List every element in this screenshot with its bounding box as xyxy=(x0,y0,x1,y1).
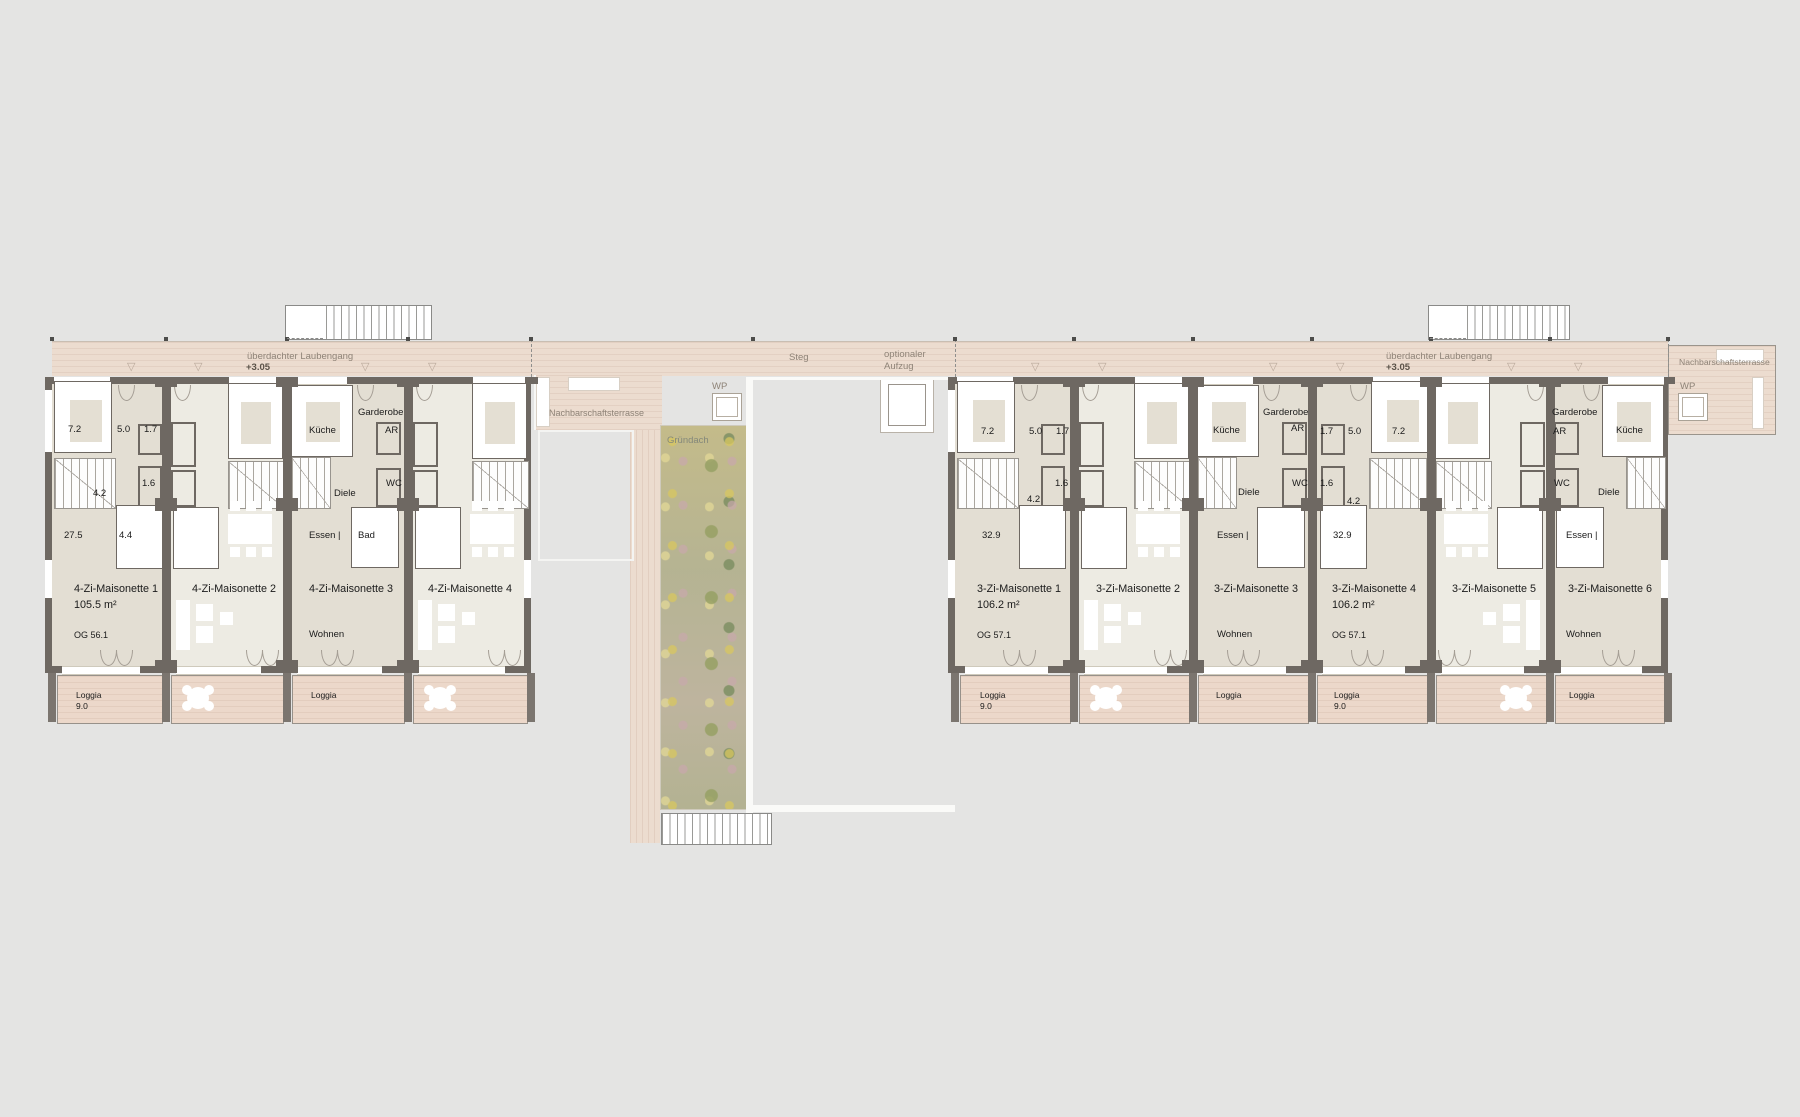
post xyxy=(164,337,168,341)
loggia-side-wall xyxy=(283,673,291,722)
divider-flange xyxy=(276,377,298,387)
loggia-side-wall xyxy=(404,673,412,722)
room-label: Essen | xyxy=(1217,530,1249,541)
sofa-cushion xyxy=(438,604,455,621)
kitchen-island xyxy=(1617,402,1651,442)
dashed-landing-edge xyxy=(1430,338,1466,339)
room-label: WC xyxy=(1292,478,1308,489)
wp-box-inner xyxy=(1682,397,1704,417)
bench xyxy=(568,377,620,391)
room-label: 5.0 xyxy=(1348,426,1361,437)
room-label: AR xyxy=(1553,426,1566,437)
loggia-chair xyxy=(446,685,456,695)
room-label: 32.9 xyxy=(1333,530,1352,541)
window-bottom xyxy=(1203,666,1286,675)
sub-terrace-outline xyxy=(538,430,634,561)
loggia-area: 9.0 xyxy=(1334,701,1346,712)
storage-room xyxy=(1079,422,1104,467)
chair xyxy=(246,547,256,557)
aufzug-label-line1: optionaler xyxy=(884,349,926,360)
room-label: Wohnen xyxy=(1566,629,1601,640)
post xyxy=(1191,337,1195,341)
window-bottom xyxy=(1084,666,1167,675)
chair xyxy=(488,501,498,511)
laubengang-level-left: +3.05 xyxy=(246,362,270,373)
divider-wall xyxy=(404,377,413,673)
sofa-cushion xyxy=(196,604,213,621)
kitchen xyxy=(1602,385,1664,457)
divider-flange xyxy=(1539,377,1561,387)
chair xyxy=(1462,501,1472,511)
divider-flange xyxy=(1301,660,1323,673)
room-label: Wohnen xyxy=(309,629,344,640)
chair xyxy=(1478,547,1488,557)
loggia-chair xyxy=(1090,701,1100,711)
divider-flange xyxy=(1063,377,1085,387)
window-side xyxy=(45,390,52,452)
loggia-label: Loggia xyxy=(311,690,337,701)
kitchen xyxy=(472,383,527,459)
post xyxy=(1072,337,1076,341)
sofa xyxy=(1084,600,1098,650)
unit-area: 105.5 m² xyxy=(74,600,117,611)
room-label: WC xyxy=(1554,478,1570,489)
kitchen xyxy=(228,383,283,459)
chair xyxy=(1154,547,1164,557)
loggia-side-wall xyxy=(951,673,959,722)
bedroom xyxy=(957,381,1015,453)
dining-table xyxy=(228,514,272,544)
room-label: 27.5 xyxy=(64,530,83,541)
loggia-chair xyxy=(1112,685,1122,695)
divider-flange xyxy=(1420,377,1442,387)
room-label: 4.2 xyxy=(1027,494,1040,505)
post xyxy=(953,337,957,341)
dining-table xyxy=(1444,514,1488,544)
entrance-marker: ▽ xyxy=(1031,360,1039,373)
divider-flange xyxy=(397,498,419,511)
room-label: 7.2 xyxy=(68,424,81,435)
dining-table xyxy=(470,514,514,544)
post xyxy=(406,337,410,341)
dashed-landing-edge xyxy=(287,338,323,339)
laubengang-label-right: überdachter Laubengang xyxy=(1386,351,1492,362)
room-label: WC xyxy=(386,478,402,489)
sofa-cushion xyxy=(1503,626,1520,643)
floor-plan-canvas: überdachter Laubengang +3.05 überdachter… xyxy=(0,0,1800,1117)
divider-flange xyxy=(276,660,298,673)
loggia xyxy=(292,675,405,724)
chair xyxy=(504,547,514,557)
room-label: 1.6 xyxy=(1055,478,1068,489)
gruendach-label: Gründach xyxy=(667,435,709,446)
exterior-stair-top-left xyxy=(285,305,432,340)
exterior-stair-top-right xyxy=(1428,305,1570,340)
loggia-label: Loggia xyxy=(1216,690,1242,701)
room-label: Diele xyxy=(1598,487,1620,498)
chair xyxy=(262,547,272,557)
sofa xyxy=(176,600,190,650)
window-side xyxy=(1661,560,1668,598)
steg-vertical xyxy=(630,430,660,843)
loggia-label: Loggia xyxy=(1334,690,1360,701)
loggia-chair xyxy=(446,701,456,711)
loggia-chair xyxy=(1112,701,1122,711)
entrance-marker: ▽ xyxy=(127,360,135,373)
loggia-area: 9.0 xyxy=(76,701,88,712)
divider-flange xyxy=(276,498,298,511)
sofa-cushion xyxy=(196,626,213,643)
chair xyxy=(1170,547,1180,557)
storage-room xyxy=(171,422,196,467)
window-top xyxy=(1197,377,1253,385)
chair xyxy=(1138,547,1148,557)
loggia-chair xyxy=(1522,685,1532,695)
loggia-chair xyxy=(1500,685,1510,695)
divider-flange xyxy=(1301,377,1323,387)
room-label: Garderobe xyxy=(1263,407,1308,418)
room-label: 7.2 xyxy=(1392,426,1405,437)
divider-flange xyxy=(1301,498,1323,511)
unit-area: 106.2 m² xyxy=(977,600,1020,611)
coffee-table xyxy=(1483,612,1496,625)
sofa-cushion xyxy=(438,626,455,643)
wp-box-inner xyxy=(716,397,738,417)
loggia xyxy=(57,675,163,724)
coffee-table xyxy=(462,612,475,625)
chair xyxy=(230,501,240,511)
bath-room xyxy=(1497,507,1543,569)
divider-flange xyxy=(1420,660,1442,673)
post xyxy=(1548,337,1552,341)
chair xyxy=(1446,501,1456,511)
neighborhood-terrace-right-label: Nachbarschaftsterrasse xyxy=(1679,357,1770,368)
window-side xyxy=(948,560,955,598)
window-bottom xyxy=(965,666,1048,675)
divider-wall xyxy=(1070,377,1079,673)
post xyxy=(751,337,755,341)
unit-area: 106.2 m² xyxy=(1332,600,1375,611)
window-bottom xyxy=(1441,666,1524,675)
loggia-side-wall xyxy=(1070,673,1078,722)
loggia-side-wall xyxy=(48,673,56,722)
divider-flange xyxy=(155,498,177,511)
chair xyxy=(1170,501,1180,511)
entrance-marker: ▽ xyxy=(1098,360,1106,373)
laubengang-label-left: überdachter Laubengang xyxy=(247,351,353,362)
divider-wall xyxy=(1427,377,1436,673)
dashed-line xyxy=(1668,339,1669,377)
kitchen-island xyxy=(306,402,340,442)
coffee-table xyxy=(1128,612,1141,625)
bed xyxy=(70,400,102,442)
kitchen-island xyxy=(1212,402,1246,442)
dining-table xyxy=(1136,514,1180,544)
sofa xyxy=(1526,600,1540,650)
loggia-side-wall xyxy=(527,673,535,722)
bath-room xyxy=(1081,507,1127,569)
loggia-label: Loggia xyxy=(1569,690,1595,701)
unit-name: 4-Zi-Maisonette 1 xyxy=(74,584,158,595)
bedroom xyxy=(1371,381,1429,453)
room-label: 1.6 xyxy=(142,478,155,489)
room-label: Essen | xyxy=(1566,530,1598,541)
window-bottom xyxy=(1322,666,1405,675)
entrance-marker: ▽ xyxy=(1336,360,1344,373)
window-bottom xyxy=(418,666,505,675)
loggia-chair xyxy=(1522,701,1532,711)
stair-interior xyxy=(957,458,1019,509)
divider-flange xyxy=(1420,498,1442,511)
chair xyxy=(230,547,240,557)
room-label: 4.4 xyxy=(119,530,132,541)
loggia-side-wall xyxy=(1664,673,1672,722)
kitchen xyxy=(1134,383,1189,459)
entrance-marker: ▽ xyxy=(1507,360,1515,373)
sofa-cushion xyxy=(1104,626,1121,643)
post xyxy=(1666,337,1670,341)
loggia-side-wall xyxy=(1189,673,1197,722)
window-side xyxy=(45,560,52,598)
room-label: Diele xyxy=(334,488,356,499)
room-label: 5.0 xyxy=(1029,426,1042,437)
courtyard-wall-right xyxy=(746,377,753,813)
window-side xyxy=(524,560,531,598)
stair-interior xyxy=(1626,457,1666,509)
unit-name: 4-Zi-Maisonette 4 xyxy=(428,584,512,595)
loggia-chair xyxy=(1090,685,1100,695)
entrance-marker: ▽ xyxy=(1574,360,1582,373)
room-label: Essen | xyxy=(309,530,341,541)
room-label: 7.2 xyxy=(981,426,994,437)
window-bottom xyxy=(1560,666,1642,675)
divider-flange xyxy=(1063,660,1085,673)
laubengang-level-right: +3.05 xyxy=(1386,362,1410,373)
entrance-marker: ▽ xyxy=(361,360,369,373)
bath-room xyxy=(1019,505,1066,569)
post xyxy=(50,337,54,341)
room-label: Küche xyxy=(309,425,336,436)
bench xyxy=(536,377,550,427)
loggia xyxy=(1198,675,1309,724)
bench xyxy=(1752,377,1764,429)
loggia-area: 9.0 xyxy=(980,701,992,712)
divider-wall xyxy=(1546,377,1555,673)
kitchen xyxy=(291,385,353,457)
stair-treads xyxy=(1467,306,1569,339)
wp-mid-label: WP xyxy=(712,381,727,392)
room-label: 32.9 xyxy=(982,530,1001,541)
entrance-marker: ▽ xyxy=(428,360,436,373)
bath-room xyxy=(415,507,461,569)
divider-flange xyxy=(397,660,419,673)
divider-flange xyxy=(1063,498,1085,511)
loggia-chair xyxy=(424,701,434,711)
room-label: Küche xyxy=(1213,425,1240,436)
entrance-marker: ▽ xyxy=(1269,360,1277,373)
room-label: 5.0 xyxy=(117,424,130,435)
kitchen xyxy=(1435,383,1490,459)
courtyard-wall-bottom xyxy=(746,805,955,812)
room-label: AR xyxy=(385,425,398,436)
bath-room xyxy=(1257,507,1305,568)
window-side xyxy=(948,390,955,452)
room-label: Bad xyxy=(358,530,375,541)
unit-name: 3-Zi-Maisonette 2 xyxy=(1096,584,1180,595)
divider-flange xyxy=(1182,377,1204,387)
loggia-side-wall xyxy=(162,673,170,722)
dashed-line xyxy=(955,339,956,377)
unit-level-area: OG 57.1 xyxy=(1332,630,1366,641)
dashed-line xyxy=(531,339,532,377)
room-label: 1.7 xyxy=(1320,426,1333,437)
chair xyxy=(1154,501,1164,511)
chair xyxy=(504,501,514,511)
exterior-stair-bottom xyxy=(661,813,772,845)
window-bottom xyxy=(297,666,382,675)
kitchen-island xyxy=(485,402,515,444)
room-label: 1.7 xyxy=(1056,426,1069,437)
courtyard xyxy=(753,377,955,808)
unit-name: 3-Zi-Maisonette 6 xyxy=(1568,584,1652,595)
sofa-cushion xyxy=(1104,604,1121,621)
neighborhood-terrace-mid-label: Nachbarschaftsterrasse xyxy=(549,408,644,419)
coffee-table xyxy=(220,612,233,625)
unit-level-area: OG 57.1 xyxy=(977,630,1011,641)
loggia-chair xyxy=(1500,701,1510,711)
loggia-chair xyxy=(204,701,214,711)
loggia xyxy=(1436,675,1547,724)
room-label: 1.7 xyxy=(144,424,157,435)
unit-name: 4-Zi-Maisonette 2 xyxy=(192,584,276,595)
divider-wall xyxy=(1189,377,1198,673)
chair xyxy=(488,547,498,557)
loggia-chair xyxy=(182,685,192,695)
room-label: 4.2 xyxy=(93,488,106,499)
storage-room xyxy=(1520,422,1545,467)
bath-room xyxy=(173,507,219,569)
loggia-side-wall xyxy=(1427,673,1435,722)
unit-name: 3-Zi-Maisonette 5 xyxy=(1452,584,1536,595)
room-label: AR xyxy=(1291,423,1304,434)
room-label: 1.6 xyxy=(1320,478,1333,489)
chair xyxy=(246,501,256,511)
loggia-side-wall xyxy=(1308,673,1316,722)
unit-name: 3-Zi-Maisonette 4 xyxy=(1332,584,1416,595)
window-top xyxy=(1608,377,1664,385)
divider-flange xyxy=(1182,498,1204,511)
chair xyxy=(262,501,272,511)
divider-wall xyxy=(1308,377,1317,673)
loggia-chair xyxy=(182,701,192,711)
window-bottom xyxy=(62,666,140,675)
chair xyxy=(1138,501,1148,511)
divider-flange xyxy=(155,660,177,673)
room-label: Wohnen xyxy=(1217,629,1252,640)
stair-treads xyxy=(326,306,431,339)
loggia-label: Loggia xyxy=(76,690,102,701)
divider-flange xyxy=(1182,660,1204,673)
chair xyxy=(1478,501,1488,511)
unit-name: 3-Zi-Maisonette 3 xyxy=(1214,584,1298,595)
room-label: 4.2 xyxy=(1347,496,1360,507)
sofa-cushion xyxy=(1503,604,1520,621)
loggia-label: Loggia xyxy=(980,690,1006,701)
kitchen-island xyxy=(1147,402,1177,444)
window-bottom xyxy=(176,666,261,675)
chair xyxy=(1446,547,1456,557)
steg-label: Steg xyxy=(789,352,809,363)
wp-box-mid xyxy=(712,393,742,421)
unit-level-area: OG 56.1 xyxy=(74,630,108,641)
loggia-chair xyxy=(204,685,214,695)
kitchen-island xyxy=(1448,402,1478,444)
stair-interior xyxy=(54,458,116,509)
storage-room xyxy=(413,422,438,467)
post xyxy=(529,337,533,341)
divider-wall xyxy=(283,377,292,673)
room-label: Garderobe xyxy=(1552,407,1597,418)
room-label: Diele xyxy=(1238,487,1260,498)
wp-right-label: WP xyxy=(1680,381,1695,392)
room-label: Garderobe xyxy=(358,407,403,418)
loggia xyxy=(960,675,1071,724)
divider-flange xyxy=(155,377,177,387)
unit-name: 4-Zi-Maisonette 3 xyxy=(309,584,393,595)
entrance-marker: ▽ xyxy=(194,360,202,373)
loggia-side-wall xyxy=(1546,673,1554,722)
chair xyxy=(472,501,482,511)
divider-flange xyxy=(1539,660,1561,673)
green-roof-texture xyxy=(661,426,747,809)
divider-flange xyxy=(397,377,419,387)
aufzug-label-line2: Aufzug xyxy=(884,361,914,372)
divider-wall xyxy=(162,377,171,673)
window-top xyxy=(291,377,347,385)
chair xyxy=(1462,547,1472,557)
sofa xyxy=(418,600,432,650)
post xyxy=(1310,337,1314,341)
kitchen-island xyxy=(241,402,271,444)
wp-box-right xyxy=(1678,393,1708,421)
loggia-chair xyxy=(424,685,434,695)
chair xyxy=(472,547,482,557)
bedroom xyxy=(54,381,112,453)
green-roof xyxy=(660,425,748,810)
unit-name: 3-Zi-Maisonette 1 xyxy=(977,584,1061,595)
kitchen xyxy=(1197,385,1259,457)
divider-flange xyxy=(1539,498,1561,511)
room-label: Küche xyxy=(1616,425,1643,436)
